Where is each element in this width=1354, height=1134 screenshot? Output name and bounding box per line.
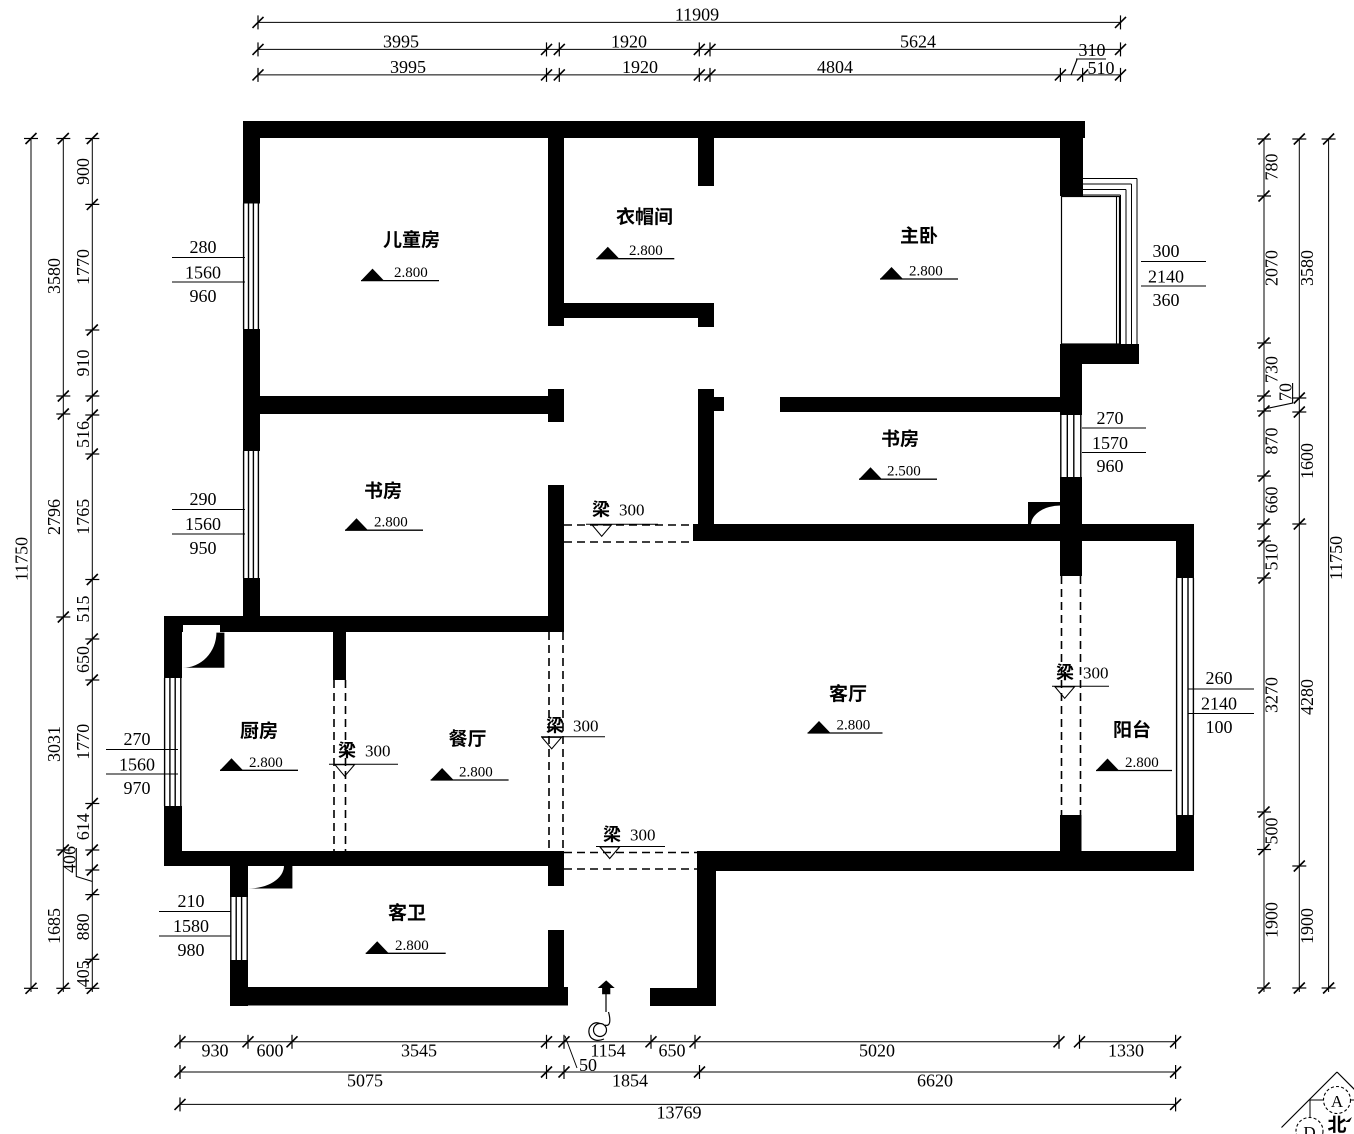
- svg-text:300: 300: [1153, 241, 1180, 261]
- svg-text:600: 600: [257, 1040, 284, 1060]
- svg-text:5075: 5075: [347, 1071, 383, 1091]
- svg-text:1560: 1560: [119, 755, 155, 775]
- svg-text:650: 650: [659, 1040, 686, 1060]
- svg-text:360: 360: [1153, 290, 1180, 310]
- svg-text:1770: 1770: [73, 249, 93, 285]
- svg-text:650: 650: [73, 646, 93, 673]
- svg-text:3270: 3270: [1262, 677, 1282, 713]
- svg-text:510: 510: [1088, 58, 1115, 78]
- svg-text:960: 960: [190, 286, 217, 306]
- svg-text:2.500: 2.500: [887, 464, 921, 480]
- svg-text:660: 660: [1262, 487, 1282, 514]
- svg-text:310: 310: [1079, 40, 1106, 60]
- svg-text:880: 880: [73, 913, 93, 940]
- svg-text:2.800: 2.800: [837, 718, 871, 734]
- svg-text:780: 780: [1262, 154, 1282, 181]
- svg-text:1580: 1580: [173, 916, 209, 936]
- svg-text:1765: 1765: [73, 499, 93, 535]
- svg-text:100: 100: [1206, 717, 1233, 737]
- svg-text:300: 300: [630, 826, 656, 845]
- svg-text:D: D: [1303, 1123, 1315, 1134]
- svg-text:5020: 5020: [859, 1040, 895, 1060]
- svg-text:2.800: 2.800: [909, 264, 943, 280]
- svg-text:2796: 2796: [44, 499, 64, 535]
- svg-text:4280: 4280: [1297, 679, 1317, 715]
- svg-text:2070: 2070: [1262, 250, 1282, 286]
- svg-text:A: A: [1331, 1092, 1344, 1111]
- svg-text:2.800: 2.800: [629, 243, 663, 259]
- svg-text:300: 300: [1083, 664, 1109, 683]
- svg-text:1770: 1770: [73, 724, 93, 760]
- svg-text:3580: 3580: [44, 258, 64, 294]
- svg-text:2.800: 2.800: [459, 765, 493, 781]
- svg-text:270: 270: [1097, 408, 1124, 428]
- svg-text:1685: 1685: [44, 908, 64, 944]
- svg-text:3545: 3545: [401, 1040, 437, 1060]
- svg-text:1330: 1330: [1108, 1040, 1144, 1060]
- svg-text:950: 950: [190, 538, 217, 558]
- svg-text:516: 516: [73, 421, 93, 448]
- svg-text:510: 510: [1262, 544, 1282, 571]
- svg-text:13769: 13769: [657, 1103, 702, 1123]
- svg-text:1600: 1600: [1297, 443, 1317, 479]
- svg-text:2.800: 2.800: [394, 265, 428, 281]
- svg-text:3580: 3580: [1297, 250, 1317, 286]
- svg-text:980: 980: [178, 940, 205, 960]
- svg-text:3031: 3031: [44, 726, 64, 762]
- svg-text:3995: 3995: [383, 31, 419, 51]
- svg-text:1920: 1920: [622, 57, 658, 77]
- svg-text:910: 910: [73, 350, 93, 377]
- svg-text:4804: 4804: [817, 57, 853, 77]
- svg-text:280: 280: [190, 237, 217, 257]
- svg-text:210: 210: [178, 891, 205, 911]
- svg-text:614: 614: [73, 813, 93, 840]
- svg-text:1560: 1560: [185, 263, 221, 283]
- svg-text:960: 960: [1097, 456, 1124, 476]
- svg-text:730: 730: [1262, 356, 1282, 383]
- svg-text:405: 405: [73, 960, 93, 987]
- svg-text:2.800: 2.800: [374, 515, 408, 531]
- svg-text:3995: 3995: [390, 57, 426, 77]
- svg-text:5624: 5624: [900, 31, 936, 51]
- svg-text:1900: 1900: [1297, 908, 1317, 944]
- svg-text:1900: 1900: [1262, 902, 1282, 938]
- svg-text:900: 900: [73, 158, 93, 185]
- svg-text:260: 260: [1206, 668, 1233, 688]
- svg-text:11750: 11750: [12, 537, 32, 581]
- svg-text:1570: 1570: [1092, 433, 1128, 453]
- svg-text:300: 300: [619, 501, 645, 520]
- svg-text:300: 300: [573, 717, 599, 736]
- svg-text:11909: 11909: [675, 4, 719, 24]
- svg-text:2140: 2140: [1201, 694, 1237, 714]
- svg-text:870: 870: [1262, 428, 1282, 455]
- svg-text:2.800: 2.800: [249, 755, 283, 771]
- svg-text:1920: 1920: [611, 31, 647, 51]
- svg-text:500: 500: [1262, 818, 1282, 845]
- svg-text:6620: 6620: [917, 1071, 953, 1091]
- svg-text:515: 515: [73, 596, 93, 623]
- svg-text:930: 930: [202, 1040, 229, 1060]
- svg-text:11750: 11750: [1326, 536, 1346, 580]
- svg-text:970: 970: [124, 778, 151, 798]
- svg-text:1854: 1854: [612, 1071, 648, 1091]
- svg-text:2140: 2140: [1148, 267, 1184, 287]
- svg-text:2.800: 2.800: [395, 938, 429, 954]
- svg-text:290: 290: [190, 489, 217, 509]
- svg-text:2.800: 2.800: [1125, 755, 1159, 771]
- svg-text:270: 270: [124, 729, 151, 749]
- svg-text:1560: 1560: [185, 514, 221, 534]
- svg-text:300: 300: [365, 742, 391, 761]
